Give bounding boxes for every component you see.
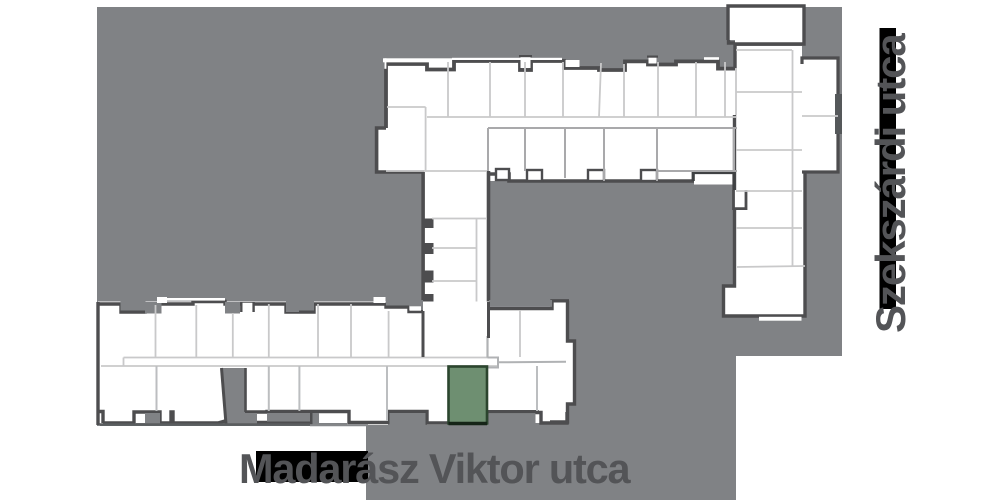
svg-text:Madarász Viktor utca: Madarász Viktor utca: [239, 445, 632, 492]
svg-text:Szekszárdi utca: Szekszárdi utca: [867, 33, 914, 333]
